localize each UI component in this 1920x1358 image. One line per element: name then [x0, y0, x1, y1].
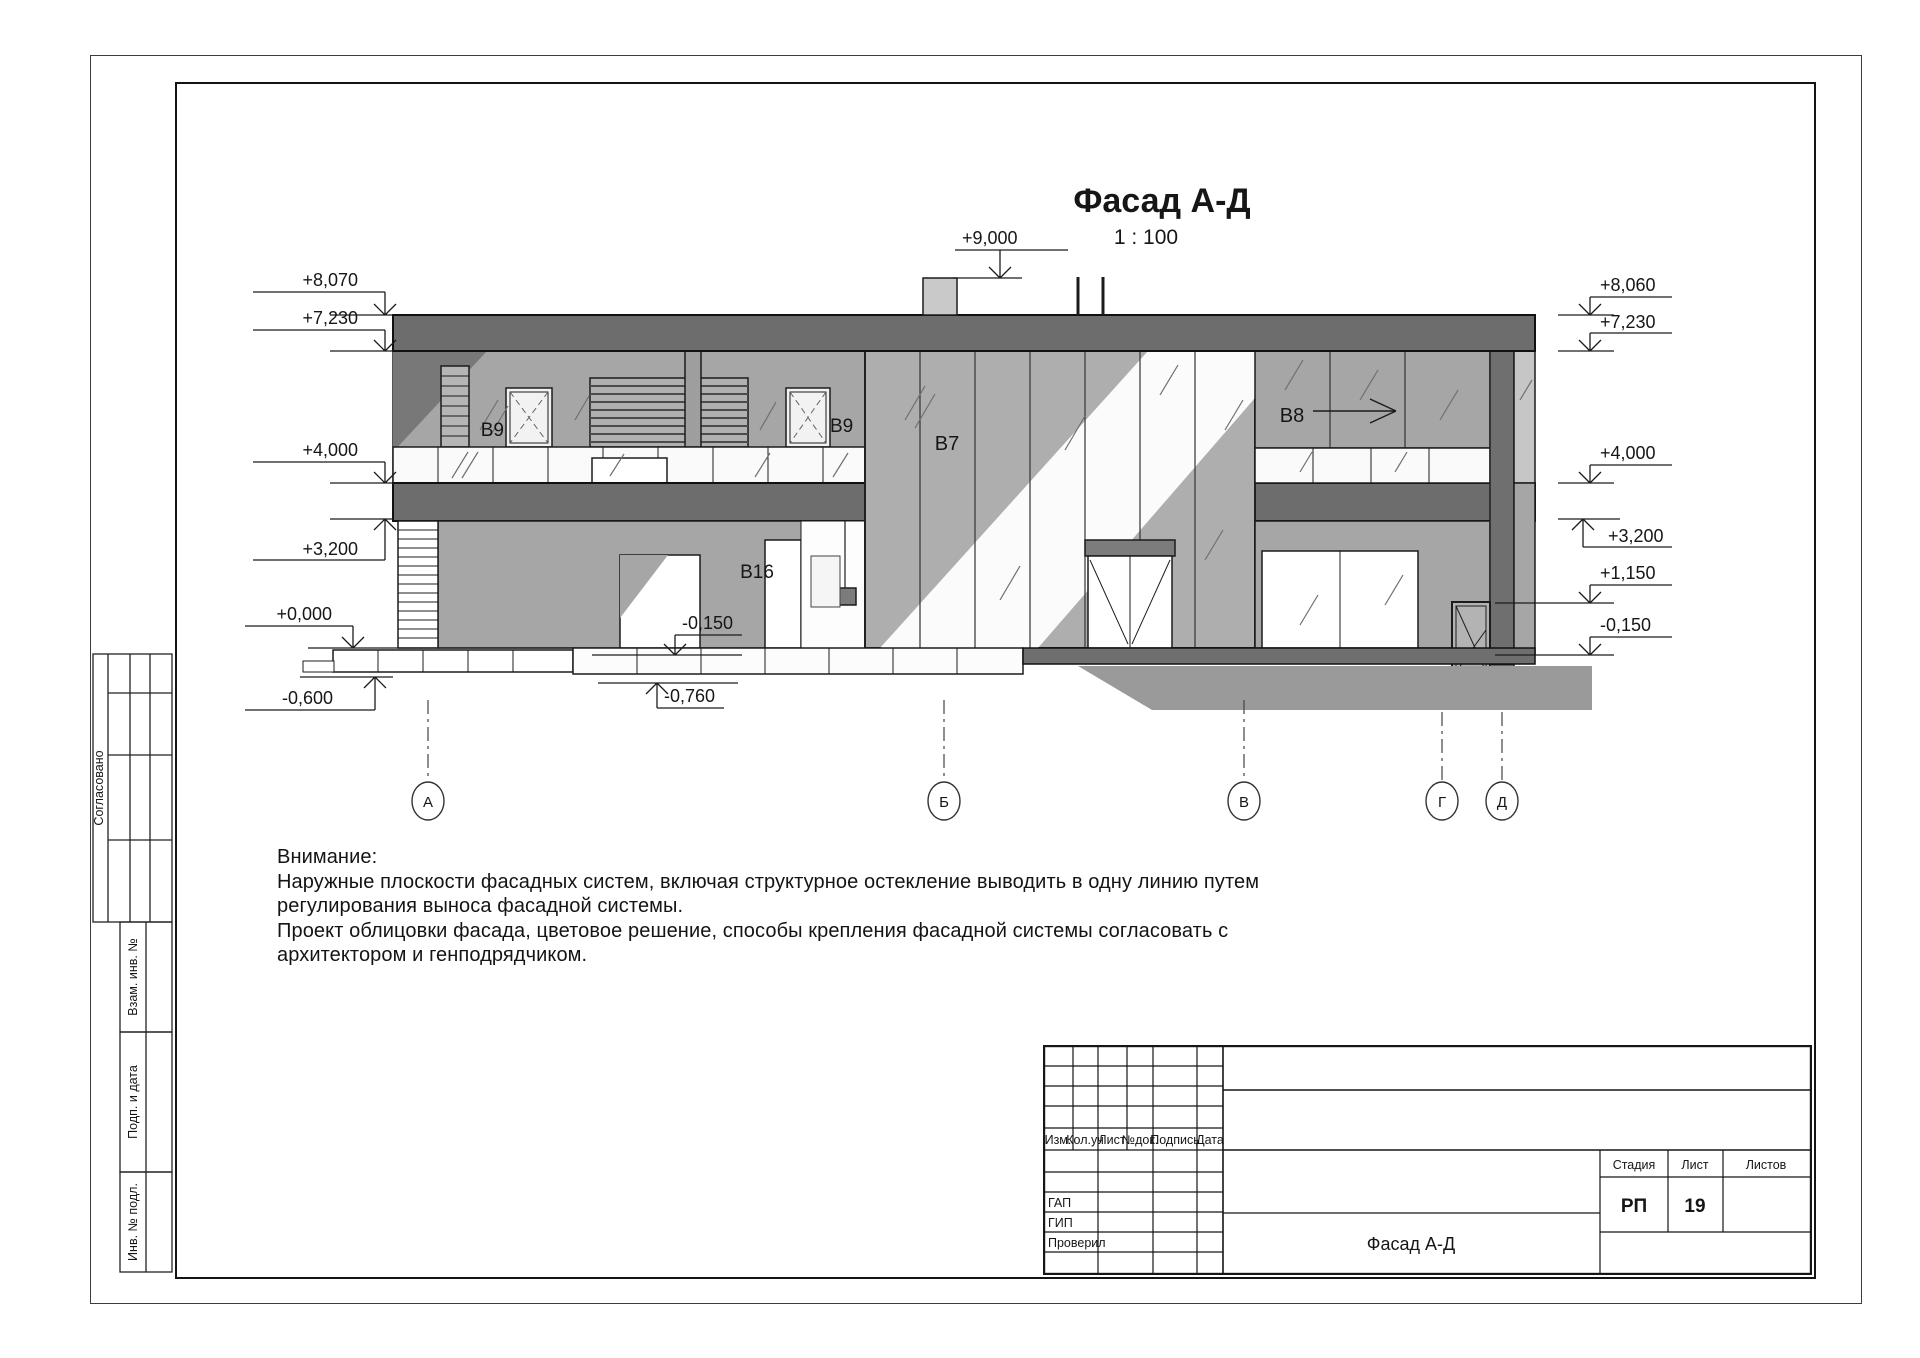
elev-mark-top: +9,000: [953, 228, 1068, 278]
elev-mark-right-1: +7,230: [1558, 312, 1672, 351]
glazing-band-right: [1255, 448, 1490, 483]
axis-grid: А Б В Г Д: [412, 700, 1518, 820]
stage-label: Стадия: [1613, 1158, 1656, 1172]
sheet-number: 19: [1684, 1196, 1705, 1217]
role-proveril: Проверил: [1048, 1236, 1106, 1250]
label-v16: В16: [740, 562, 774, 583]
right-wall-lower: [1514, 483, 1535, 655]
terrace-curb: [303, 661, 334, 672]
note-line: архитектором и генподрядчиком.: [277, 943, 1267, 968]
elev-label: +7,230: [1600, 312, 1656, 332]
elev-mark-right-0: +8,060: [1558, 275, 1672, 315]
elev-label: +1,150: [1600, 563, 1656, 583]
elev-label: -0,600: [282, 688, 333, 708]
facade-geometry: [303, 277, 1592, 710]
elev-label: +0,000: [276, 604, 332, 624]
door-v16: [765, 540, 801, 648]
louver-screen: [590, 378, 748, 447]
door-transom: [1085, 540, 1175, 556]
drawing-sheet: Фасад А-Д 1 : 100: [0, 0, 1920, 1358]
elev-mark-right-3: +3,200: [1558, 519, 1672, 547]
elev-mark-left-2: +4,000: [253, 440, 396, 483]
doc-name: Фасад А-Д: [1367, 1234, 1455, 1254]
col-podpis: Подпись: [1150, 1133, 1199, 1147]
ground-shadow: [1078, 666, 1592, 710]
side-stamp: Согласовано Взам. инв. № Подп. и дата Ин…: [92, 653, 178, 1278]
elev-label: +7,230: [302, 308, 358, 328]
axis-label-v: В: [1239, 794, 1249, 811]
title-block: Изм. Кол.уч Лист №док. Подпись Дата ГАП …: [1043, 1045, 1812, 1275]
replace-inv-label: Взам. инв. №: [126, 938, 140, 1015]
sign-date-label: Подп. и дата: [126, 1065, 140, 1139]
elev-label: +4,000: [302, 440, 358, 460]
axis-label-a: А: [423, 794, 433, 811]
base-dark-band: [1023, 648, 1535, 664]
drawing-scale: 1 : 100: [1114, 226, 1178, 249]
elev-mark-right-2: +4,000: [1558, 443, 1672, 483]
roof-parapet: [393, 315, 1535, 351]
sheets-label: Листов: [1746, 1158, 1787, 1172]
note-line: регулирования выноса фасадной системы.: [277, 894, 1267, 919]
elev-label: +4,000: [1600, 443, 1656, 463]
drawing-title: Фасад А-Д: [1073, 182, 1250, 220]
elev-mark-left-3: +3,200: [253, 519, 396, 560]
role-gap: ГАП: [1048, 1196, 1071, 1210]
small-window: [811, 556, 840, 607]
label-v9-left: В9: [481, 420, 504, 441]
note-heading: Внимание:: [277, 845, 1267, 870]
label-v8: В8: [1280, 405, 1304, 427]
axis-label-g: Г: [1438, 794, 1446, 811]
label-v9-right: В9: [830, 416, 853, 437]
elev-label: +8,060: [1600, 275, 1656, 295]
col-data: Дата: [1196, 1133, 1224, 1147]
axis-label-b: Б: [939, 794, 949, 811]
stage-value: РП: [1621, 1196, 1647, 1217]
approved-label: Согласовано: [92, 750, 106, 825]
elev-label: -0,760: [664, 686, 715, 706]
plinth-band: [573, 648, 1023, 674]
elev-label: +9,000: [962, 228, 1018, 248]
inv-no-label: Инв. № подл.: [126, 1183, 140, 1261]
elev-label: -0,150: [682, 613, 733, 633]
floor-slab-left: [393, 483, 865, 521]
notes-block: Внимание: Наружные плоскости фасадных си…: [277, 845, 1267, 968]
facade-post: [685, 351, 701, 447]
note-line: Наружные плоскости фасадных систем, вклю…: [277, 870, 1267, 895]
sheet-label: Лист: [1681, 1158, 1708, 1172]
elev-label: +8,070: [302, 270, 358, 290]
note-line: Проект облицовки фасада, цветовое решени…: [277, 919, 1267, 944]
label-v7: В7: [935, 433, 959, 455]
elev-label: +3,200: [1608, 526, 1664, 546]
right-wall-light: [1514, 351, 1535, 483]
role-gip: ГИП: [1048, 1216, 1073, 1230]
right-wall-dark: [1490, 351, 1514, 683]
elev-mark-left-5: -0,600: [245, 677, 393, 710]
roof-posts: [1078, 277, 1103, 315]
elev-label: +3,200: [302, 539, 358, 559]
terrace: [333, 650, 573, 672]
elev-label: -0,150: [1600, 615, 1651, 635]
elev-mark-inner-1: -0,760: [598, 683, 738, 708]
axis-label-d: Д: [1497, 794, 1507, 811]
chimney: [923, 278, 957, 315]
